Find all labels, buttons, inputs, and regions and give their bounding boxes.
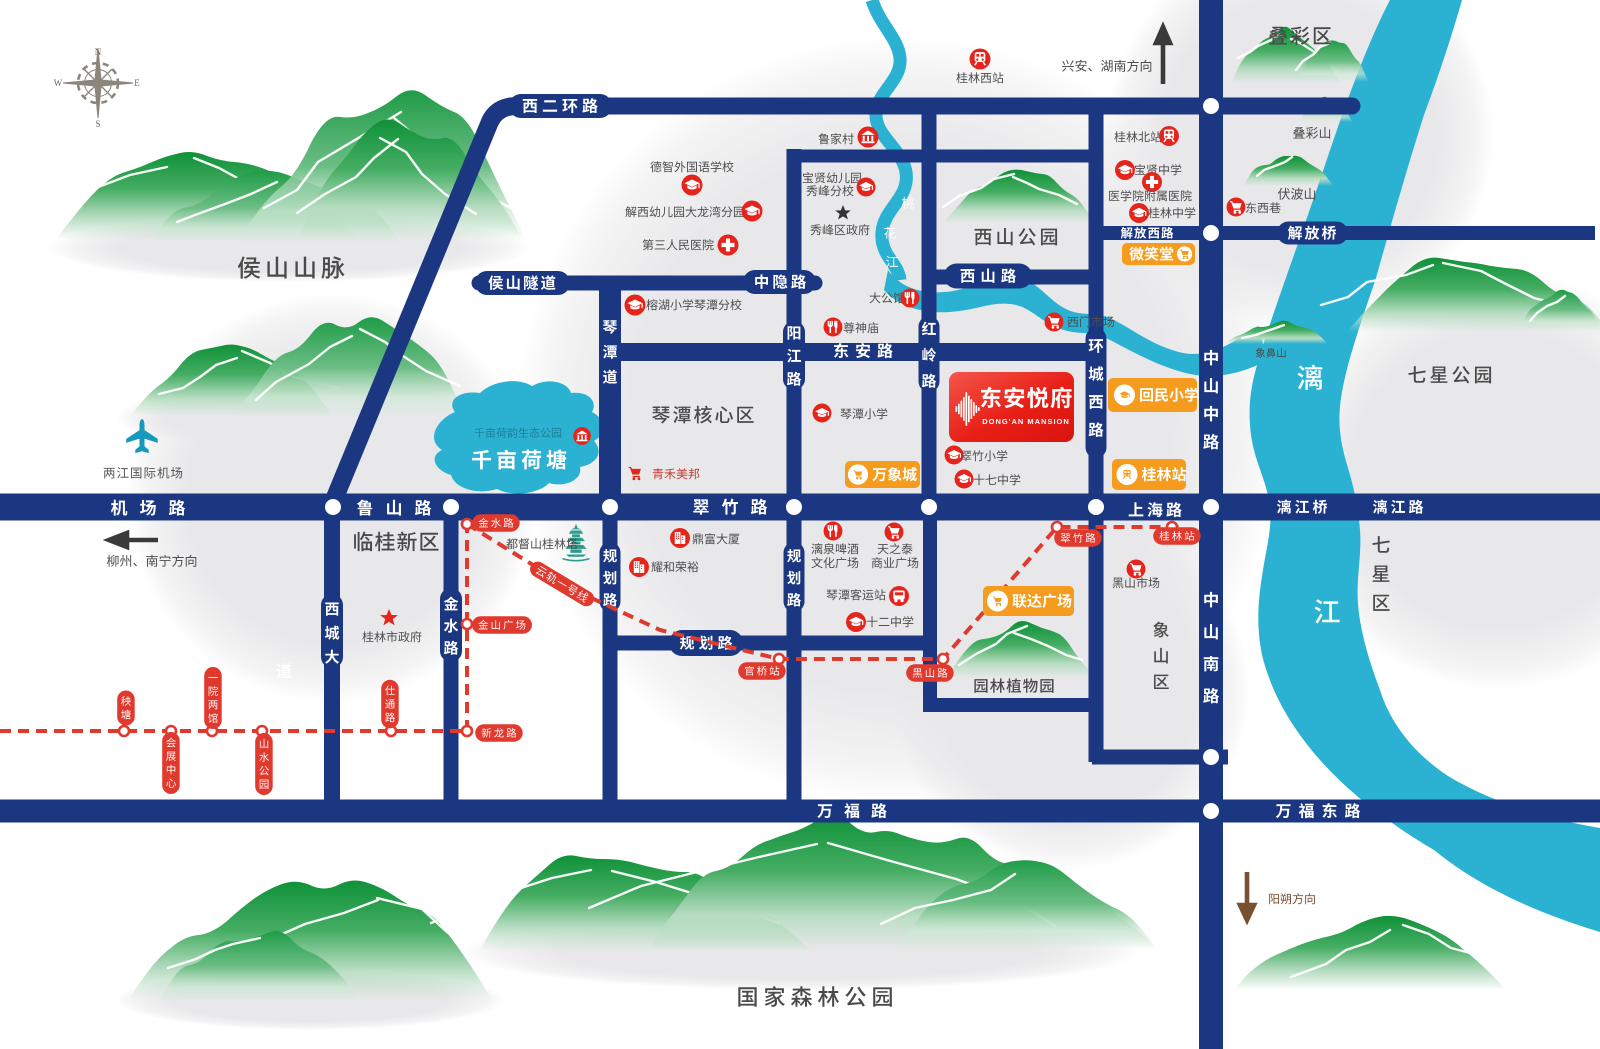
svg-text:W: W (54, 78, 63, 88)
svg-text:DONG'AN MANSION: DONG'AN MANSION (982, 417, 1070, 426)
svg-text:N: N (95, 47, 102, 57)
svg-text:E: E (134, 78, 140, 88)
svg-text:S: S (95, 119, 100, 129)
